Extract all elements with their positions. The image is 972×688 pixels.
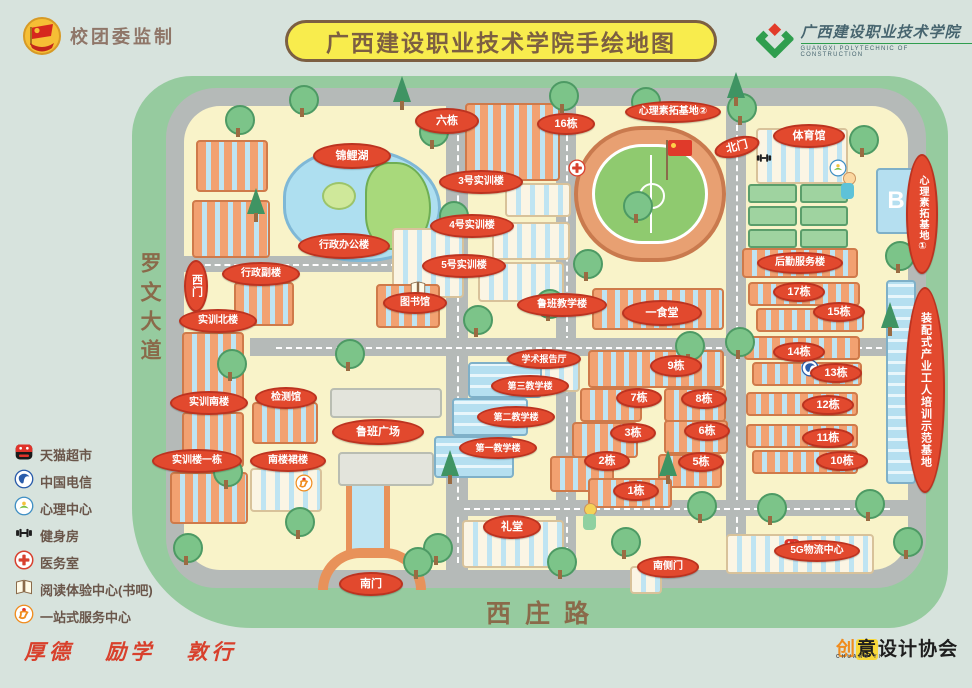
psychology-icon [14, 496, 34, 521]
psychology-icon [829, 159, 847, 177]
campus-map-poster: 校团委监制 广西建设职业技术学院手绘地图 广西建设职业技术学院 GUANGXI … [0, 0, 972, 688]
school-name-en: GUANGXI POLYTECHNIC OF CONSTRUCTION [801, 43, 972, 58]
map-label-5G物流中心: 5G物流中心 [774, 540, 860, 562]
producer-text: 校团委监制 [70, 23, 175, 49]
pine-tree [659, 450, 677, 476]
legend-item: 中国电信 [14, 471, 153, 492]
map-label-第一教学楼: 第一教学楼 [459, 437, 537, 459]
pine-trunk [666, 475, 670, 484]
legend-label: 健身房 [40, 526, 79, 545]
tree [623, 191, 653, 221]
court-cell [800, 229, 849, 248]
map-label-锦鲤湖: 锦鲤湖 [313, 143, 391, 169]
legend-label: 心理中心 [40, 499, 92, 518]
map-label-15栋: 15栋 [813, 302, 865, 322]
map-label-实训楼一栋: 实训楼一栋 [152, 449, 242, 473]
tree-trunk [560, 104, 564, 113]
map-label-礼堂: 礼堂 [483, 515, 541, 539]
youth-league-emblem-icon [22, 16, 62, 56]
legend-item: 医务室 [14, 552, 153, 573]
pine-trunk [400, 101, 404, 110]
court-cell [748, 206, 797, 225]
legend: 天猫超市中国电信心理中心健身房医务室阅读体验中心(书吧)一站式服务中心 [14, 444, 153, 627]
pine-tree [441, 450, 459, 476]
reading-icon [14, 577, 34, 602]
legend-label: 天猫超市 [40, 445, 92, 464]
school-logo-icon [756, 20, 794, 58]
tree-trunk [300, 108, 304, 117]
map-title: 广西建设职业技术学院手绘地图 [285, 20, 717, 62]
map-label-心理素拓基地②: 心理素拓基地② [625, 101, 721, 123]
map-label-1栋: 1栋 [613, 481, 659, 501]
tree [573, 249, 603, 279]
tree [855, 489, 885, 519]
tree-trunk [228, 372, 232, 381]
tree-trunk [634, 214, 638, 223]
tree-trunk [414, 570, 418, 579]
map-label-检测馆: 检测馆 [255, 387, 317, 409]
map-label-行政办公楼: 行政办公楼 [298, 233, 390, 259]
gym-icon [755, 149, 773, 167]
walking-girl-body [583, 514, 596, 530]
tree [547, 547, 577, 577]
telecom-icon [14, 469, 34, 494]
map-label-2栋: 2栋 [584, 451, 630, 471]
tree-trunk [698, 514, 702, 523]
map-label-后勤服务楼: 后勤服务楼 [757, 252, 843, 274]
legend-item: 心理中心 [14, 498, 153, 519]
map-label-体育馆: 体育馆 [773, 124, 845, 148]
tree [225, 105, 255, 135]
map-label-16栋: 16栋 [537, 113, 595, 135]
map-label-南门: 南门 [339, 572, 403, 596]
map-label-装配式产业工人培训示范基地: 装配式产业工人培训示范基地 [905, 287, 945, 493]
map-label-第二教学楼: 第二教学楼 [477, 406, 555, 428]
road-name-south: 西庄路 [486, 594, 603, 630]
map-label-9栋: 9栋 [650, 355, 702, 377]
legend-item: 阅读体验中心(书吧) [14, 579, 153, 600]
football-field [592, 144, 708, 244]
tree-trunk [866, 512, 870, 521]
map-label-实训北楼: 实训北楼 [179, 309, 257, 333]
legend-label: 医务室 [40, 553, 79, 572]
map-label-西门: 西门 [184, 260, 208, 312]
map-label-南侧门: 南侧门 [637, 556, 699, 578]
association-char: 协 [918, 639, 938, 660]
map-label-南楼裙楼: 南楼裙楼 [250, 450, 326, 472]
clinic-icon [14, 550, 34, 575]
legend-item: 健身房 [14, 525, 153, 546]
tree-trunk [296, 530, 300, 539]
association-name-en: CHUANG YI [836, 654, 882, 660]
tree [757, 493, 787, 523]
tree [173, 533, 203, 563]
tree [289, 85, 319, 115]
pine-trunk [888, 327, 892, 336]
court-cell [748, 229, 797, 248]
tree [849, 125, 879, 155]
legend-item: 天猫超市 [14, 444, 153, 465]
tree-trunk [904, 550, 908, 559]
tree [725, 327, 755, 357]
school-name: 广西建设职业技术学院 [801, 21, 972, 42]
legend-label: 一站式服务中心 [40, 607, 131, 626]
tree-trunk [736, 350, 740, 359]
legend-item: 一站式服务中心 [14, 606, 153, 627]
association-char: 会 [938, 639, 958, 660]
tree-trunk [860, 148, 864, 157]
pine-trunk [734, 97, 738, 106]
tree [463, 305, 493, 335]
map-label-学术报告厅: 学术报告厅 [507, 349, 581, 369]
court-cell [800, 206, 849, 225]
tree-trunk [584, 272, 588, 281]
pine-trunk [254, 213, 258, 222]
stadium-track [574, 126, 726, 262]
tree-trunk [738, 116, 742, 125]
map-label-11栋: 11栋 [802, 428, 854, 448]
map-label-3号实训楼: 3号实训楼 [439, 170, 523, 194]
map-label-7栋: 7栋 [616, 388, 662, 408]
legend-label: 阅读体验中心(书吧) [40, 580, 153, 599]
map-label-13栋: 13栋 [810, 363, 862, 383]
tree-trunk [474, 328, 478, 337]
map-label-5栋: 5栋 [678, 452, 724, 472]
map-label-鲁班教学楼: 鲁班教学楼 [517, 293, 607, 317]
map-label-3栋: 3栋 [610, 423, 656, 443]
tree-trunk [184, 556, 188, 565]
gym-icon [14, 523, 34, 548]
legend-label: 中国电信 [40, 472, 92, 491]
map-label-图书馆: 图书馆 [383, 292, 447, 314]
map-label-第三教学楼: 第三教学楼 [491, 375, 569, 397]
road-name-west: 罗文大道 [134, 252, 164, 368]
tree [549, 81, 579, 111]
tree-trunk [768, 516, 772, 525]
tree [217, 349, 247, 379]
map-label-一食堂: 一食堂 [622, 300, 702, 326]
producer-badge: 校团委监制 [22, 16, 175, 56]
tree [335, 339, 365, 369]
building [330, 388, 442, 418]
tree-trunk [346, 362, 350, 371]
clinic-icon [568, 159, 586, 177]
tree [403, 547, 433, 577]
tree-trunk [430, 140, 434, 149]
pine-tree [247, 188, 265, 214]
map-label-心理素拓基地①: 心理素拓基地① [906, 154, 938, 274]
tree [687, 491, 717, 521]
red-flag-icon [668, 140, 692, 156]
map-label-17栋: 17栋 [773, 282, 825, 302]
map-label-5号实训楼: 5号实训楼 [422, 254, 506, 278]
map-label-六栋: 六栋 [415, 108, 479, 134]
basketball-courts [748, 184, 848, 248]
onestop-icon [295, 474, 313, 492]
pine-tree [727, 72, 745, 98]
map-label-12栋: 12栋 [802, 395, 854, 415]
road [446, 500, 908, 516]
court-cell [748, 184, 797, 203]
building [196, 140, 268, 192]
lake-lily-pad [322, 182, 356, 210]
tennis-player-body [841, 183, 854, 199]
map-label-10栋: 10栋 [816, 451, 868, 471]
association-name: CHUANG YI 创意设计协会 [836, 634, 958, 661]
map-label-行政副楼: 行政副楼 [222, 262, 300, 286]
road-centerline [464, 508, 889, 510]
tree-trunk [896, 264, 900, 273]
map-label-鲁班广场: 鲁班广场 [332, 419, 424, 445]
school-logo-text: 广西建设职业技术学院 GUANGXI POLYTECHNIC OF CONSTR… [801, 21, 972, 58]
tree [893, 527, 923, 557]
tree-trunk [236, 128, 240, 137]
association-char: 计 [898, 639, 918, 660]
map-label-14栋: 14栋 [773, 342, 825, 362]
building [338, 452, 434, 486]
tree-trunk [434, 556, 438, 565]
map-label-6栋: 6栋 [684, 421, 730, 441]
map-label-实训南楼: 实训南楼 [170, 391, 248, 415]
pine-trunk [448, 475, 452, 484]
tree-trunk [622, 550, 626, 559]
tree-trunk [224, 480, 228, 489]
map-label-8栋: 8栋 [681, 389, 727, 409]
pine-tree [393, 76, 411, 102]
school-motto: 厚德 励学 敦行 [24, 636, 237, 666]
tmall-icon [14, 442, 34, 467]
onestop-icon [14, 604, 34, 629]
tree-trunk [558, 570, 562, 579]
pine-tree [881, 302, 899, 328]
tree [285, 507, 315, 537]
map-label-4号实训楼: 4号实训楼 [430, 214, 514, 238]
school-logo: 广西建设职业技术学院 GUANGXI POLYTECHNIC OF CONSTR… [756, 20, 972, 58]
tree [611, 527, 641, 557]
